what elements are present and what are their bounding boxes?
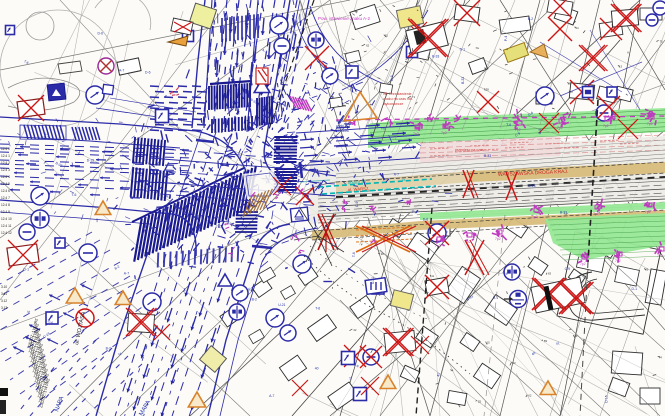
svg-text:12.4 9: 12.4 9 <box>1 210 10 214</box>
svg-text:D-6: D-6 <box>390 75 394 81</box>
svg-text:T-6: T-6 <box>352 252 356 257</box>
svg-text:7p2: 7p2 <box>657 254 663 258</box>
svg-text:3.10: 3.10 <box>1 285 7 289</box>
svg-text:D-1: D-1 <box>632 287 638 291</box>
svg-text:C-9: C-9 <box>538 129 542 135</box>
svg-text:B-2: B-2 <box>106 347 111 351</box>
svg-text:D-6: D-6 <box>145 71 151 75</box>
svg-text:63: 63 <box>548 272 552 276</box>
svg-text:7p2: 7p2 <box>580 262 586 266</box>
svg-text:D-15: D-15 <box>528 184 535 188</box>
svg-text:U-21: U-21 <box>278 303 285 307</box>
svg-text:7p2: 7p2 <box>435 244 441 248</box>
svg-text:12.4 2: 12.4 2 <box>1 161 10 165</box>
svg-text:T-6: T-6 <box>72 193 77 197</box>
svg-text:B-33: B-33 <box>560 211 567 215</box>
svg-text:60: 60 <box>485 67 489 71</box>
svg-text:Wl. Przestawienie: Wl. Przestawienie <box>383 92 412 96</box>
svg-text:B-33: B-33 <box>484 154 491 158</box>
svg-text:3.11: 3.11 <box>1 292 7 296</box>
svg-text:C-9: C-9 <box>565 267 571 271</box>
svg-text:12.4 11: 12.4 11 <box>1 224 12 228</box>
svg-text:C-9: C-9 <box>355 202 359 208</box>
svg-text:66: 66 <box>343 104 347 108</box>
svg-text:7p2: 7p2 <box>495 237 501 241</box>
svg-text:33: 33 <box>574 334 578 338</box>
svg-text:T-6: T-6 <box>315 307 320 311</box>
svg-text:A-7: A-7 <box>124 272 129 276</box>
svg-text:7p2: 7p2 <box>532 215 538 219</box>
svg-text:ul.: ul. <box>119 352 123 356</box>
svg-text:53: 53 <box>513 361 517 365</box>
svg-text:7p2: 7p2 <box>593 212 599 216</box>
svg-text:62: 62 <box>528 394 532 398</box>
svg-text:B-33: B-33 <box>432 55 439 59</box>
svg-text:A-7: A-7 <box>269 394 274 398</box>
svg-text:D-15: D-15 <box>605 395 609 402</box>
svg-text:12.4 12: 12.4 12 <box>1 231 12 235</box>
svg-text:A-7: A-7 <box>119 69 124 73</box>
svg-text:94: 94 <box>575 26 579 30</box>
svg-text:Pow. istawienie znaku A-2: Pow. istawienie znaku A-2 <box>318 16 371 21</box>
svg-text:71: 71 <box>412 95 416 99</box>
svg-text:40: 40 <box>437 373 441 377</box>
svg-text:T-6: T-6 <box>380 126 385 130</box>
svg-text:69: 69 <box>645 267 649 271</box>
svg-text:13: 13 <box>619 64 623 68</box>
svg-text:12.4 4: 12.4 4 <box>1 175 10 179</box>
svg-text:wykonawcze: wykonawcze <box>383 102 403 106</box>
svg-text:7p2: 7p2 <box>441 131 447 135</box>
svg-text:T-6: T-6 <box>506 123 511 127</box>
svg-text:P-4: P-4 <box>412 210 417 214</box>
svg-text:11: 11 <box>431 274 434 278</box>
svg-text:A-7: A-7 <box>394 172 399 176</box>
svg-text:40: 40 <box>315 366 319 370</box>
svg-text:3.13: 3.13 <box>1 306 7 310</box>
svg-text:12.4 3: 12.4 3 <box>1 168 10 172</box>
svg-text:59: 59 <box>486 87 490 91</box>
svg-text:89: 89 <box>544 339 548 343</box>
svg-text:7p2: 7p2 <box>647 122 653 126</box>
svg-text:B-2: B-2 <box>252 298 257 302</box>
svg-text:przeniesc na czas: przeniesc na czas <box>455 148 484 152</box>
svg-text:90: 90 <box>381 252 385 256</box>
svg-text:D-6: D-6 <box>98 31 104 35</box>
svg-text:C-9: C-9 <box>331 243 337 247</box>
svg-text:U-21: U-21 <box>371 277 375 284</box>
svg-text:12.4 10: 12.4 10 <box>1 217 12 221</box>
svg-text:15: 15 <box>487 341 491 345</box>
svg-text:62: 62 <box>366 43 370 47</box>
svg-text:ul.: ul. <box>349 376 353 380</box>
svg-text:xx: xx <box>402 178 406 182</box>
svg-text:44: 44 <box>659 355 663 359</box>
svg-text:D-15: D-15 <box>87 159 94 163</box>
svg-text:42: 42 <box>353 328 357 332</box>
svg-text:57: 57 <box>570 90 574 94</box>
svg-text:7p2: 7p2 <box>615 259 621 263</box>
svg-text:P-4: P-4 <box>504 36 508 41</box>
svg-text:12.4 0: 12.4 0 <box>1 147 10 151</box>
svg-text:12.4 8: 12.4 8 <box>1 203 10 207</box>
svg-text:75: 75 <box>660 40 664 44</box>
svg-text:12.4 7: 12.4 7 <box>1 196 10 200</box>
svg-text:B-33: B-33 <box>461 77 465 84</box>
svg-text:U-21: U-21 <box>38 136 45 140</box>
svg-text:12.4 1: 12.4 1 <box>1 154 10 158</box>
svg-text:12.4 5: 12.4 5 <box>1 182 10 186</box>
svg-text:7p2: 7p2 <box>645 210 651 214</box>
svg-text:ul.: ul. <box>556 341 560 345</box>
svg-text:12.4 6: 12.4 6 <box>1 189 10 193</box>
svg-text:15: 15 <box>385 34 389 38</box>
svg-text:7p2: 7p2 <box>413 132 419 136</box>
svg-text:25: 25 <box>478 400 482 404</box>
svg-text:D-6: D-6 <box>423 217 429 221</box>
svg-text:D-1: D-1 <box>493 296 499 300</box>
svg-text:3.12: 3.12 <box>1 299 7 303</box>
svg-text:25: 25 <box>568 82 572 86</box>
svg-text:B-2: B-2 <box>528 17 533 21</box>
svg-text:D-1: D-1 <box>460 48 466 52</box>
svg-text:7p2: 7p2 <box>603 124 609 128</box>
svg-text:7p2: 7p2 <box>557 126 563 130</box>
svg-text:7p2: 7p2 <box>465 240 471 244</box>
svg-text:D-1: D-1 <box>24 268 30 272</box>
